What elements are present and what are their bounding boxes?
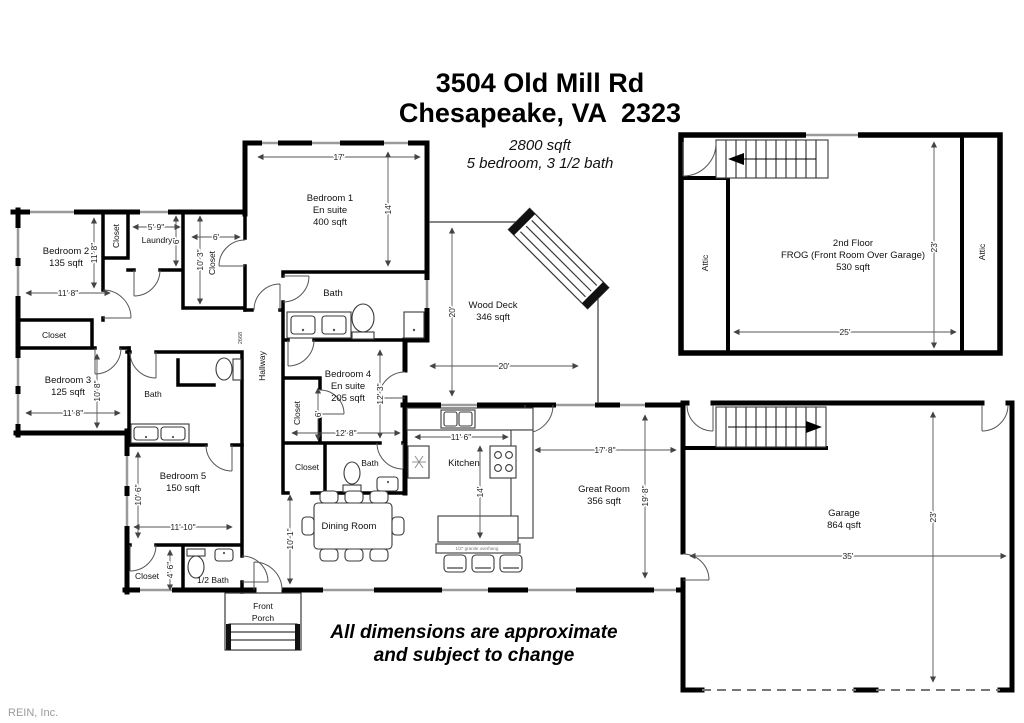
svg-text:11' 8": 11' 8": [63, 408, 84, 418]
svg-text:10' 3": 10' 3": [195, 249, 205, 270]
rooms-summary: 5 bedroom, 3 1/2 bath: [467, 155, 614, 172]
watermark: REIN, Inc.: [8, 707, 58, 719]
svg-text:11' 10": 11' 10": [170, 522, 195, 532]
room-label-wood-deck-area: 346 sqft: [476, 312, 510, 323]
dim-bedroom2-width: 11' 8": [26, 288, 110, 298]
room-label-attic-left: Attic: [700, 254, 710, 271]
dim-closet5-height: 4' 6": [165, 550, 175, 590]
room-label-laundry: Laundry: [142, 235, 173, 245]
dim-laundry-height: 6': [171, 216, 181, 266]
room-label-frog-line3: 530 sqft: [836, 262, 870, 273]
svg-text:23': 23': [929, 241, 939, 252]
room-label-great-room-name: Great Room: [578, 484, 630, 495]
room-label-closet-hall: Closet: [207, 250, 217, 275]
door-bedroom4: [288, 340, 314, 366]
svg-text:10' 8": 10' 8": [92, 380, 102, 401]
door-frog: [683, 142, 716, 176]
wall-interior-bedroom5: [127, 445, 242, 592]
svg-text:23': 23': [928, 511, 938, 522]
room-label-bedroom2-area: 135 sqft: [49, 258, 83, 269]
svg-text:20': 20': [447, 306, 457, 317]
svg-text:10' 6": 10' 6": [133, 484, 143, 505]
svg-text:25': 25': [839, 327, 850, 337]
svg-text:6': 6': [213, 232, 220, 242]
dim-bedroom3-height: 10' 8": [92, 354, 102, 428]
garage-stairs: [716, 407, 826, 447]
room-label-great-room-area: 356 sqft: [587, 496, 621, 507]
door-garage-top-left: [687, 405, 713, 431]
svg-text:11' 8": 11' 8": [58, 288, 79, 298]
dim-frog-height: 23': [929, 142, 939, 348]
door-garage-great-room: [683, 554, 709, 580]
svg-text:17': 17': [333, 152, 344, 162]
svg-text:19' 8": 19' 8": [640, 485, 650, 506]
deck-stairs: [508, 208, 608, 308]
dim-bedroom2-height: 11' 8": [89, 218, 99, 288]
room-label-bedroom3-area: 125 sqft: [51, 387, 85, 398]
dim-hall-closet-height: 10' 3": [195, 216, 205, 304]
room-label-bedroom1-area: 400 sqft: [313, 217, 347, 228]
dim-deck-height: 20': [447, 228, 457, 396]
room-label-wood-deck-name: Wood Deck: [469, 300, 518, 311]
header: 3504 Old Mill Rd Chesapeake, VA 2323 280…: [399, 68, 681, 172]
svg-text:11' 6": 11' 6": [451, 432, 472, 442]
dim-garage-width: 35': [690, 551, 1006, 561]
room-label-porch-line1: Front: [253, 601, 273, 611]
dim-great-room-width: 17' 8": [535, 445, 676, 455]
dim-bedroom5-width: 11' 10": [134, 522, 232, 532]
svg-text:14': 14': [475, 486, 485, 497]
address-line-1: 3504 Old Mill Rd: [436, 68, 645, 98]
svg-text:4' 6": 4' 6": [165, 562, 175, 578]
door-size-label: 2668: [238, 332, 244, 344]
room-label-frog-line2: FROG (Front Room Over Garage): [781, 250, 925, 261]
door-bath1: [283, 276, 309, 302]
counter-note: 1/2" granite overhang: [456, 546, 499, 551]
room-label-bedroom4-name: Bedroom 4: [325, 369, 371, 380]
wall-interior-left: [18, 212, 245, 348]
room-label-porch-line2: Porch: [252, 613, 274, 623]
dim-kitchen-width: 11' 6": [415, 432, 508, 442]
room-label-closet-row: Closet: [295, 462, 320, 472]
svg-text:12' 8": 12' 8": [335, 428, 356, 438]
room-label-attic-right: Attic: [977, 243, 987, 260]
room-label-bedroom4-area: 205 sqft: [331, 393, 365, 404]
door-closet5: [130, 545, 156, 571]
dim-frog-width: 25': [734, 327, 956, 337]
kitchen-island: [438, 516, 518, 542]
wood-deck: [429, 208, 609, 403]
floor-plan-svg: 3504 Old Mill Rd Chesapeake, VA 2323 280…: [0, 0, 1024, 723]
frog-stairs: [716, 140, 828, 178]
room-label-bath-mid: Bath: [144, 389, 162, 399]
dim-bedroom4-height: 12' 3": [375, 350, 385, 438]
room-label-frog-line1: 2nd Floor: [833, 238, 873, 249]
svg-text:35': 35': [842, 551, 853, 561]
door-bedroom2: [103, 290, 131, 318]
room-label-half-bath: 1/2 Bath: [197, 575, 229, 585]
room-label-bedroom3-name: Bedroom 3: [45, 375, 91, 386]
toilet-bath1: [352, 304, 374, 332]
toilet-mid-bath: [216, 358, 232, 380]
mid-bath-fixtures: [131, 358, 241, 443]
room-label-hallway: Hallway: [257, 350, 267, 381]
door-bath4: [377, 443, 403, 469]
dim-hall-closet-width: 6': [192, 232, 240, 242]
half-bath-fixtures: [187, 549, 233, 578]
room-label-bedroom5-area: 150 sqft: [166, 483, 200, 494]
room-label-closet-bedroom2: Closet: [111, 223, 121, 248]
dim-bedroom3-width: 11' 8": [26, 408, 120, 418]
svg-text:14': 14': [383, 203, 393, 214]
dim-dining-height: 10' 1": [285, 495, 295, 584]
door-mid-bath: [130, 352, 156, 378]
svg-text:5' 9": 5' 9": [148, 222, 164, 232]
address-line-2: Chesapeake, VA 2323: [399, 98, 681, 128]
dim-bedroom1-width: 17': [258, 152, 420, 162]
svg-text:11' 8": 11' 8": [89, 243, 99, 264]
door-garage-top-right: [982, 405, 1008, 431]
dim-bedroom5-height: 10' 6": [133, 452, 143, 538]
dim-bedroom4-width: 12' 8": [292, 428, 400, 438]
room-label-closet-bedroom3: Closet: [42, 330, 67, 340]
room-label-kitchen: Kitchen: [448, 458, 480, 469]
door-hall-closet: [219, 240, 245, 266]
room-label-dining: Dining Room: [322, 521, 377, 532]
door-bedroom1: [254, 284, 280, 310]
room-label-bedroom4-suite: En suite: [331, 381, 365, 392]
door-front: [254, 562, 282, 590]
room-label-bath4: Bath: [361, 458, 379, 468]
disclaimer-line-2: and subject to change: [374, 645, 575, 666]
room-label-bedroom2-name: Bedroom 2: [43, 246, 89, 257]
svg-text:6': 6': [313, 410, 323, 417]
room-label-bedroom1-suite: En suite: [313, 205, 347, 216]
dim-bedroom1-height: 14': [383, 152, 393, 266]
room-label-garage-name: Garage: [828, 508, 860, 519]
wall-interior-center: [127, 272, 427, 493]
room-label-garage-area: 864 qsft: [827, 520, 861, 531]
svg-text:10' 1": 10' 1": [285, 528, 295, 549]
svg-text:17' 8": 17' 8": [594, 445, 615, 455]
room-label-bedroom1-name: Bedroom 1: [307, 193, 353, 204]
room-label-closet5: Closet: [135, 571, 160, 581]
toilet-bath4: [344, 462, 360, 484]
door-half-bath: [242, 556, 268, 582]
svg-text:12' 3": 12' 3": [375, 383, 385, 404]
room-label-bath1: Bath: [323, 288, 343, 299]
svg-text:6': 6': [171, 237, 181, 244]
footer: All dimensions are approximate and subje…: [8, 622, 618, 719]
door-bedroom3: [95, 348, 121, 374]
bath1-fixtures: [287, 304, 424, 339]
floor-plan-page: 3504 Old Mill Rd Chesapeake, VA 2323 280…: [0, 0, 1024, 723]
door-laundry: [134, 270, 160, 296]
dim-garage-height: 23': [928, 412, 938, 682]
disclaimer-line-1: All dimensions are approximate: [329, 622, 618, 643]
door-bedroom5: [206, 445, 232, 471]
total-area: 2800 sqft: [508, 137, 572, 154]
room-label-bedroom5-name: Bedroom 5: [160, 471, 206, 482]
dim-great-room-height: 19' 8": [640, 415, 650, 578]
room-label-closet-bedroom4: Closet: [292, 400, 302, 425]
stove: [490, 446, 516, 478]
dim-laundry-width: 5' 9": [133, 222, 180, 232]
svg-text:20': 20': [498, 361, 509, 371]
